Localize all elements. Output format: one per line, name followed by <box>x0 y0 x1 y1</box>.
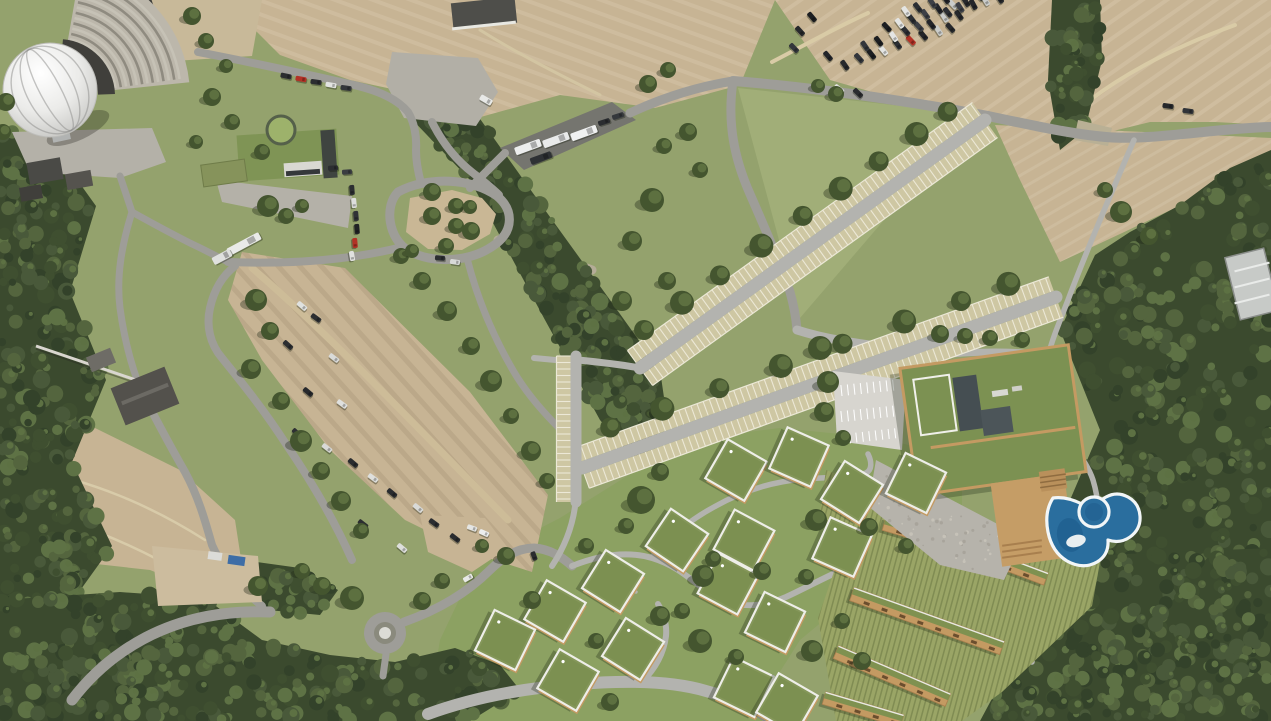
forest-crown <box>393 699 400 706</box>
tree-highlight <box>958 293 969 304</box>
forest-crown-light <box>1120 455 1124 459</box>
tree-highlight <box>937 327 947 337</box>
forest-crown-light <box>29 312 33 316</box>
tree-highlight <box>648 190 661 203</box>
car-body <box>349 185 355 195</box>
gravel-dot <box>979 540 982 543</box>
forest-crown-light <box>1131 245 1139 253</box>
forest-crown-light <box>15 593 22 600</box>
forest-crown <box>574 285 587 298</box>
tree-highlight <box>641 322 652 333</box>
forest-crown-light <box>1236 674 1241 679</box>
forest-crown <box>1106 439 1123 456</box>
forest-crown-light <box>97 615 101 619</box>
forest-crown-light <box>343 678 351 686</box>
forest-crown <box>1205 479 1214 488</box>
forest-crown-light <box>67 577 74 584</box>
forest-crown <box>493 170 502 179</box>
forest-crown-light <box>1100 657 1107 664</box>
forest-crown <box>1253 598 1262 607</box>
forest-crown-light <box>360 666 364 670</box>
gravel-dot <box>942 540 945 543</box>
roundabout-centre <box>379 627 391 639</box>
forest-crown-light <box>1139 452 1147 460</box>
gravel-dot <box>971 568 973 570</box>
forest-crown-light <box>1187 336 1194 343</box>
car-windshield <box>347 87 350 90</box>
gravel-dot <box>959 541 963 545</box>
forest-crown-light <box>637 374 642 379</box>
forest-crown-light <box>1227 583 1231 587</box>
tree-highlight <box>624 520 633 529</box>
forest-crown <box>1117 650 1133 666</box>
tree-highlight <box>248 361 259 372</box>
forest-crown <box>197 625 206 634</box>
forest-crown-light <box>314 655 320 661</box>
gravel-dot <box>963 560 966 563</box>
tree-highlight <box>800 208 811 219</box>
tree-highlight <box>901 312 914 325</box>
tree-highlight <box>680 605 689 614</box>
forest-crown <box>72 486 79 493</box>
forest-crown-light <box>1186 584 1194 592</box>
forest-crown <box>1191 206 1205 220</box>
forest-crown-light <box>366 698 372 704</box>
forest-crown-light <box>201 682 207 688</box>
forest-crown-light <box>1144 652 1150 658</box>
forest-crown <box>52 540 67 555</box>
car-windshield <box>302 78 305 81</box>
forest-crown-light <box>1071 40 1077 46</box>
car <box>342 169 353 176</box>
forest-crown <box>1074 7 1090 23</box>
forest-crown <box>1192 448 1207 463</box>
forest-crown <box>1070 86 1084 100</box>
tree-highlight <box>1103 184 1112 193</box>
forest-crown <box>10 494 20 504</box>
forest-crown <box>585 281 592 288</box>
forest-crown <box>1225 519 1234 528</box>
forest-crown <box>523 281 538 296</box>
forest-crown <box>1216 487 1230 501</box>
forest-crown-light <box>290 709 298 717</box>
forest-crown-light <box>1221 624 1226 629</box>
forest-crown <box>1150 643 1165 658</box>
forest-crown <box>7 353 21 367</box>
forest-crown-light <box>551 218 554 221</box>
forest-crown <box>71 421 79 429</box>
forest-crown <box>1159 579 1174 594</box>
forest-crown-light <box>1083 291 1090 298</box>
forest-crown-light <box>1145 675 1150 680</box>
tree-highlight <box>429 209 439 219</box>
forest-crown <box>586 365 598 377</box>
forest-crown <box>1172 403 1184 415</box>
forest-crown-light <box>478 149 483 154</box>
forest-crown-light <box>1164 253 1168 257</box>
forest-crown <box>1131 575 1143 587</box>
construction-dirt <box>152 546 262 606</box>
tree-highlight <box>813 511 825 523</box>
forest-crown <box>1145 406 1157 418</box>
forest-crown-light <box>104 650 110 656</box>
forest-crown <box>80 367 87 374</box>
tree-highlight <box>664 274 674 284</box>
forest-crown <box>275 587 283 595</box>
forest-crown <box>65 449 75 459</box>
forest-crown-light <box>1157 332 1161 336</box>
forest-crown <box>23 573 34 584</box>
forest-crown-light <box>1169 672 1173 676</box>
tree-highlight <box>267 324 277 334</box>
car-body <box>352 238 358 248</box>
forest-crown <box>1213 555 1230 572</box>
forest-crown-light <box>50 490 56 496</box>
forest-crown-light <box>1120 313 1127 320</box>
forest-crown <box>1106 457 1122 473</box>
forest-crown-light <box>1201 581 1205 585</box>
forest-crown <box>616 347 626 357</box>
forest-crown <box>580 265 592 277</box>
car-body <box>354 224 360 234</box>
forest-crown <box>590 394 606 410</box>
forest-crown <box>1065 637 1078 650</box>
tree-highlight <box>440 575 449 584</box>
gravel-dot <box>962 551 965 554</box>
forest-crown-light <box>1026 710 1029 713</box>
forest-crown <box>1068 664 1079 675</box>
forest-crown-light <box>1 260 6 265</box>
forest-crown <box>1161 700 1179 718</box>
forest-crown <box>1151 549 1167 565</box>
forest-crown <box>14 574 22 582</box>
forest-crown <box>166 671 173 678</box>
forest-crown <box>1234 571 1246 583</box>
forest-crown-light <box>14 628 19 633</box>
forest-crown <box>562 327 573 338</box>
forest-crown-light <box>996 712 1000 716</box>
car-windshield <box>355 217 358 219</box>
tree-highlight <box>454 220 463 229</box>
aerial-masterplan-image <box>0 0 1271 721</box>
tree-highlight <box>594 635 603 644</box>
forest-crown <box>62 285 72 295</box>
forest-crown <box>61 628 78 645</box>
forest-crown <box>1059 92 1066 99</box>
gravel-dot <box>949 518 952 521</box>
forest-crown-light <box>273 601 278 606</box>
car <box>350 198 357 210</box>
tree-highlight <box>318 464 328 474</box>
forest-crown-light <box>147 609 154 616</box>
forest-crown-light <box>53 685 60 692</box>
forest-crown <box>7 403 16 412</box>
forest-crown <box>1119 287 1134 302</box>
forest-crown <box>91 388 100 397</box>
forest-crown-light <box>1188 500 1194 506</box>
forest-crown-light <box>1212 284 1216 288</box>
forest-crown-light <box>86 538 94 546</box>
forest-crown <box>9 315 23 329</box>
tree-highlight <box>945 104 956 115</box>
forest-crown-light <box>1074 61 1077 64</box>
forest-crown <box>30 706 45 721</box>
forest-crown <box>33 244 44 255</box>
tree-highlight <box>816 338 829 351</box>
forest-crown <box>351 673 358 680</box>
forest-crown-light <box>1221 389 1226 394</box>
forest-crown <box>394 663 401 670</box>
car <box>351 238 358 250</box>
tree-highlight <box>657 465 667 475</box>
forest-crown-light <box>542 228 548 234</box>
forest-crown-light <box>49 594 55 600</box>
forest-crown <box>73 248 81 256</box>
car-windshield <box>356 230 359 232</box>
forest-crown <box>1153 369 1167 383</box>
forest-crown <box>179 665 191 677</box>
tree-highlight <box>637 489 652 504</box>
tree-highlight <box>255 578 266 589</box>
forest-crown <box>15 531 30 546</box>
forest-crown <box>1231 223 1247 239</box>
gravel-dot <box>987 549 989 551</box>
tree-highlight <box>804 571 813 580</box>
roundabout-stub <box>383 654 386 676</box>
forest-crown-light <box>1234 439 1241 446</box>
forest-crown <box>1081 43 1094 56</box>
forest-crown <box>230 645 247 662</box>
forest-crown <box>25 684 41 700</box>
forest-crown <box>484 127 496 139</box>
tree-highlight <box>278 394 288 404</box>
forest-crown <box>13 654 29 670</box>
tree-highlight <box>698 164 707 173</box>
forest-crown <box>58 646 73 661</box>
tree-highlight <box>468 224 478 234</box>
forest-crown-light <box>1147 639 1151 643</box>
car-windshield <box>353 204 356 206</box>
tree-highlight <box>1 126 10 135</box>
gravel-dot <box>915 522 919 526</box>
tree-highlight <box>645 77 655 87</box>
forest-crown <box>1074 620 1089 635</box>
forest-crown <box>16 214 27 225</box>
gravel-dot <box>942 535 946 539</box>
car-windshield <box>348 170 350 173</box>
forest-crown-light <box>1140 615 1144 619</box>
forest-crown <box>318 599 330 611</box>
gravel-dot <box>931 518 934 521</box>
forest-crown <box>169 643 184 658</box>
forest-crown <box>1114 577 1129 592</box>
forest-crown <box>1252 706 1259 713</box>
forest-crown <box>19 238 31 250</box>
tree-highlight <box>503 549 513 559</box>
forest-crown <box>1140 366 1155 381</box>
forest-crown <box>48 308 65 325</box>
forest-crown <box>118 604 128 614</box>
forest-crown-light <box>1201 197 1205 201</box>
forest-crown <box>21 269 38 286</box>
car-body <box>353 211 359 221</box>
forest-crown-light <box>1181 397 1186 402</box>
forest-crown-light <box>57 247 63 253</box>
forest-crown <box>3 543 12 552</box>
forest-crown <box>48 643 58 653</box>
forest-crown <box>1161 484 1168 491</box>
forest-crown <box>1104 286 1122 304</box>
forest-crown <box>96 700 109 713</box>
forest-crown-light <box>551 265 555 269</box>
forest-crown-light <box>1147 385 1153 391</box>
forest-crown <box>90 553 101 564</box>
forest-crown <box>1045 81 1056 92</box>
forest-crown-light <box>50 210 57 217</box>
tree-highlight <box>1005 274 1018 287</box>
forest-crown <box>1150 705 1160 715</box>
forest-crown-light <box>1209 633 1212 636</box>
gravel-dot <box>960 515 962 517</box>
forest-crown <box>1245 416 1256 427</box>
forest-crown-light <box>590 320 597 327</box>
tree-highlight <box>348 588 361 601</box>
forest-crown <box>23 390 40 407</box>
tree-highlight <box>189 9 199 19</box>
tree-highlight <box>816 80 824 88</box>
gravel-dot <box>887 506 890 509</box>
forest-crown <box>224 664 236 676</box>
car <box>352 211 359 223</box>
forest-crown <box>1223 634 1231 642</box>
forest-crown <box>1182 283 1192 293</box>
forest-crown <box>66 323 75 332</box>
forest-crown <box>1219 452 1227 460</box>
forest-crown <box>1089 613 1102 626</box>
forest-crown <box>6 167 19 180</box>
forest-crown <box>284 665 295 676</box>
car-body <box>435 255 445 261</box>
forest-crown <box>1180 676 1196 692</box>
tree-highlight <box>963 330 972 339</box>
forest-crown <box>22 670 34 682</box>
forest-crown <box>1193 516 1205 528</box>
forest-crown <box>1 201 15 215</box>
tree-highlight <box>468 339 478 349</box>
lodge-courtyard-slot <box>980 406 1013 436</box>
tree-highlight <box>319 579 329 589</box>
forest-crown-light <box>38 354 46 362</box>
forest-crown <box>92 594 105 607</box>
tree-highlight <box>913 124 926 137</box>
forest-crown <box>292 678 301 687</box>
forest-crown <box>1199 496 1213 510</box>
forest-crown <box>77 320 93 336</box>
forest-crown <box>187 644 200 657</box>
tree-highlight <box>678 293 691 306</box>
forest-crown <box>20 249 33 262</box>
tree-highlight <box>659 399 672 412</box>
forest-crown <box>1085 374 1101 390</box>
forest-crown-light <box>43 642 47 646</box>
forest-crown <box>1249 524 1256 531</box>
tree-highlight <box>265 197 277 209</box>
forest-crown-light <box>1138 413 1144 419</box>
forest-crown <box>47 385 64 402</box>
forest-crown <box>51 338 65 352</box>
forest-crown <box>24 419 32 427</box>
forest-crown <box>1055 104 1064 113</box>
forest-crown <box>1185 562 1202 579</box>
tree-highlight <box>230 116 239 125</box>
forest-crown <box>1047 691 1060 704</box>
forest-crown-light <box>1251 485 1256 490</box>
tree-highlight <box>444 240 453 249</box>
forest-crown-light <box>271 700 276 705</box>
tree-highlight <box>253 291 265 303</box>
gravel-dot <box>971 529 974 532</box>
forest-crown <box>1158 567 1168 577</box>
tree-highlight <box>410 245 418 253</box>
forest-crown <box>256 707 267 718</box>
car <box>353 224 360 236</box>
forest-crown-light <box>1244 450 1250 456</box>
forest-crown <box>1196 261 1212 277</box>
tree-highlight <box>840 336 851 347</box>
forest-crown-light <box>601 339 608 346</box>
forest-crown-light <box>18 428 25 435</box>
forest-crown <box>255 690 266 701</box>
tree-highlight <box>696 631 709 644</box>
car-body <box>342 169 352 175</box>
forest-crown <box>1210 698 1219 707</box>
tree-highlight <box>454 200 463 209</box>
tree-highlight <box>716 380 727 391</box>
tree-highlight <box>480 540 488 548</box>
tree-highlight <box>300 200 308 208</box>
forest-crown <box>1170 362 1180 372</box>
tree-highlight <box>298 432 310 444</box>
forest-crown <box>34 655 47 668</box>
forest-crown-light <box>1128 429 1136 437</box>
forest-crown-light <box>330 585 334 589</box>
forest-crown-light <box>536 262 542 268</box>
forest-crown <box>33 371 51 389</box>
forest-crown-light <box>84 420 89 425</box>
tree-highlight <box>260 146 269 155</box>
forest-crown <box>158 664 166 672</box>
forest-crown <box>1060 43 1072 55</box>
forest-crown <box>1257 462 1265 470</box>
forest-crown <box>70 532 81 543</box>
gravel-dot <box>986 521 989 524</box>
forest-crown <box>1117 552 1127 562</box>
forest-crown-light <box>1029 688 1035 694</box>
forest-crown <box>321 665 339 683</box>
forest-crown <box>124 704 141 721</box>
tree-highlight <box>284 210 293 219</box>
forest-crown <box>18 224 26 232</box>
forest-crown <box>1153 267 1162 276</box>
tree-highlight <box>825 373 837 385</box>
forest-crown-light <box>1196 555 1203 562</box>
forest-crown <box>52 454 63 465</box>
gravel-dot <box>938 528 940 530</box>
forest-crown <box>1114 712 1122 720</box>
forest-crown <box>1200 304 1217 321</box>
forest-crown <box>48 663 57 672</box>
forest-crown-light <box>1061 698 1067 704</box>
